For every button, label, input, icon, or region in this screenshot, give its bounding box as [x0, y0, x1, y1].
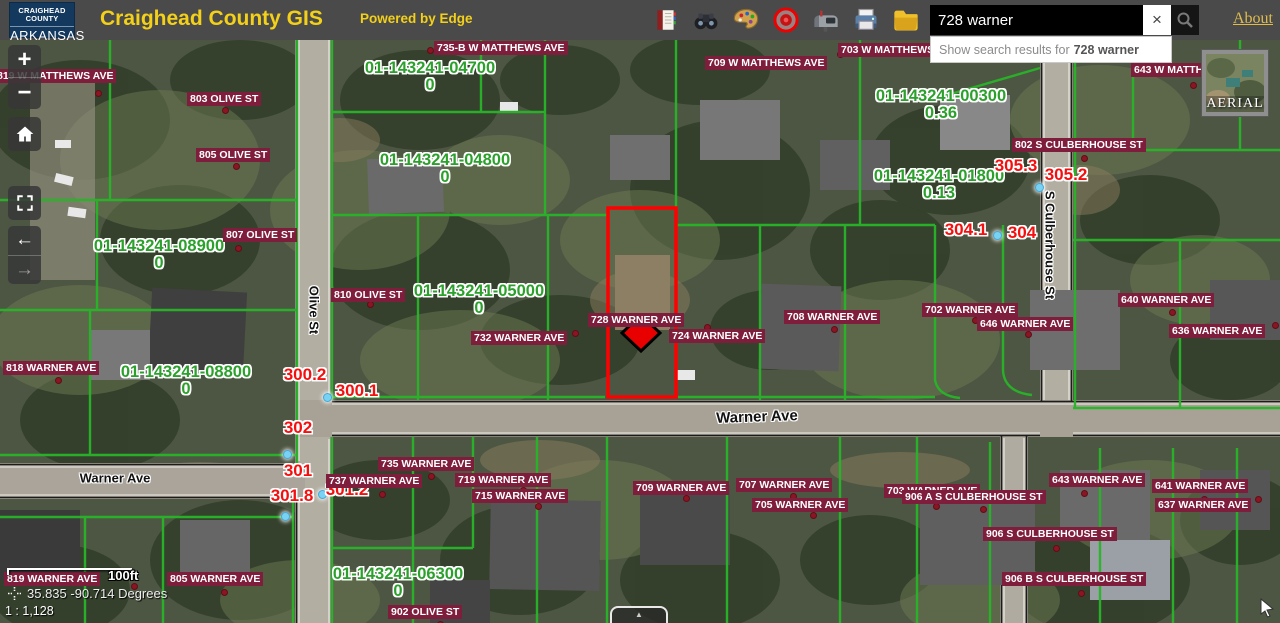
palette-icon[interactable] — [730, 4, 761, 35]
survey-point-label: 300.1 — [336, 381, 379, 401]
parcel-id: 01-143241-04700 — [365, 60, 495, 77]
mailbox-icon[interactable] — [810, 4, 841, 35]
address-point-dot — [428, 473, 435, 480]
address-label: 902 OLIVE ST — [388, 605, 462, 619]
survey-point-label: 305.2 — [1045, 165, 1088, 185]
address-label: 810 OLIVE ST — [331, 288, 405, 302]
address-point-dot — [1025, 331, 1032, 338]
app-header: CRAIGHEAD COUNTY ARKANSAS Craighead Coun… — [0, 0, 1280, 40]
address-point-dot — [535, 503, 542, 510]
address-point-dot — [1053, 545, 1060, 552]
address-label: 636 WARNER AVE — [1169, 324, 1265, 338]
clear-search-button[interactable]: × — [1143, 5, 1171, 35]
parcel-id: 01-143241-04800 — [380, 152, 510, 169]
county-logo: CRAIGHEAD COUNTY ARKANSAS — [9, 2, 75, 38]
search-button[interactable] — [1171, 5, 1199, 35]
point-marker[interactable] — [281, 512, 290, 521]
history-control: ← → — [8, 226, 41, 284]
search-input[interactable] — [930, 5, 1143, 35]
parcel-area: 0 — [333, 583, 463, 600]
parcel-id: 01-143241-01800 — [874, 168, 1004, 185]
parcel-area: 0 — [380, 169, 510, 186]
address-point-dot — [1272, 322, 1279, 329]
search-suggestion[interactable]: Show search results for 728 warner — [930, 36, 1172, 63]
toolbar — [650, 4, 921, 35]
parcel-area: 0.13 — [874, 185, 1004, 202]
parcel-id: 01-143241-08800 — [121, 364, 251, 381]
address-label: 805 WARNER AVE — [167, 572, 263, 586]
search-area: × — [930, 5, 1199, 35]
parcel-area: 0 — [121, 381, 251, 398]
address-label: 728 WARNER AVE — [588, 313, 684, 327]
address-point-dot — [222, 107, 229, 114]
address-point-dot — [367, 301, 374, 308]
forward-button[interactable]: → — [8, 255, 41, 284]
about-link[interactable]: About — [1233, 10, 1273, 28]
point-marker[interactable] — [323, 393, 332, 402]
address-label: 906 B S CULBERHOUSE ST — [1002, 572, 1146, 586]
basemap-label: AERIAL — [1206, 96, 1264, 112]
address-label: 906 A S CULBERHOUSE ST — [902, 490, 1046, 504]
suggestion-term: 728 warner — [1074, 43, 1139, 57]
fullscreen-icon — [16, 194, 34, 212]
suggestion-prefix: Show search results for — [939, 43, 1070, 57]
parcel-area: 0 — [365, 77, 495, 94]
parcel-area: 0.36 — [876, 105, 1006, 122]
binoculars-icon[interactable] — [690, 4, 721, 35]
address-point-dot — [831, 326, 838, 333]
point-marker[interactable] — [993, 231, 1002, 240]
survey-point-label: 300.2 — [284, 365, 327, 385]
chevron-up-icon: ▲ — [635, 610, 643, 619]
zoom-control: + − — [8, 45, 41, 109]
address-point-dot — [1078, 590, 1085, 597]
parcel-id-label[interactable]: 01-143241-063000 — [333, 566, 463, 600]
logo-line2: ARKANSAS — [10, 26, 74, 42]
logo-line1: CRAIGHEAD COUNTY — [10, 7, 74, 22]
point-marker[interactable] — [1035, 183, 1044, 192]
parcel-area: 0 — [94, 255, 224, 272]
parcel-id: 01-143241-06300 — [333, 566, 463, 583]
target-icon[interactable] — [770, 4, 801, 35]
address-point-dot — [379, 491, 386, 498]
address-label: 818 WARNER AVE — [3, 361, 99, 375]
address-label: 735-B W MATTHEWS AVE — [434, 41, 568, 55]
address-label: 708 WARNER AVE — [784, 310, 880, 324]
address-point-dot — [1081, 155, 1088, 162]
address-label: 803 OLIVE ST — [187, 92, 261, 106]
address-point-dot — [1169, 309, 1176, 316]
address-label: 709 WARNER AVE — [633, 481, 729, 495]
address-label: 805 OLIVE ST — [196, 148, 270, 162]
survey-point-label: 304.1 — [945, 220, 988, 240]
address-point-dot — [683, 495, 690, 502]
parcel-id-label[interactable]: 01-143241-050000 — [414, 283, 544, 317]
survey-point-label: 301 — [284, 461, 312, 481]
address-point-dot — [221, 589, 228, 596]
survey-point-label: 301.8 — [271, 486, 314, 506]
address-label: 709 W MATTHEWS AVE — [705, 56, 827, 70]
address-label: 641 WARNER AVE — [1152, 479, 1248, 493]
address-label: 705 WARNER AVE — [752, 498, 848, 512]
address-label: 715 WARNER AVE — [472, 489, 568, 503]
basemap-toggle[interactable]: AERIAL — [1202, 50, 1268, 116]
parcel-id: 01-143241-00300 — [876, 88, 1006, 105]
address-point-dot — [980, 506, 987, 513]
folder-icon[interactable] — [890, 4, 921, 35]
street-name-label: Warner Ave — [716, 407, 798, 427]
address-point-dot — [572, 330, 579, 337]
crosshair-icon — [8, 587, 21, 605]
address-label: 637 WARNER AVE — [1155, 498, 1251, 512]
address-point-dot — [1081, 490, 1088, 497]
address-label: 807 OLIVE ST — [223, 228, 297, 242]
address-label: 640 WARNER AVE — [1118, 293, 1214, 307]
address-label: 737 WARNER AVE — [326, 474, 422, 488]
expand-panel-tab[interactable]: ▲ — [610, 606, 668, 623]
book-icon[interactable] — [650, 4, 681, 35]
address-point-dot — [235, 245, 242, 252]
street-name-label: Warner Ave — [80, 471, 151, 486]
survey-point-label: 305.3 — [995, 156, 1038, 176]
parcel-id-label[interactable]: 01-143241-047000 — [365, 60, 495, 94]
address-label: 702 WARNER AVE — [922, 303, 1018, 317]
parcel-id-label[interactable]: 01-143241-003000.36 — [876, 88, 1006, 122]
survey-point-label: 304 — [1008, 223, 1036, 243]
powered-by-label: Powered by Edge — [360, 11, 473, 26]
search-icon — [1176, 11, 1194, 29]
address-point-dot — [95, 90, 102, 97]
mouse-cursor-icon — [1258, 598, 1276, 623]
address-label: 732 WARNER AVE — [471, 331, 567, 345]
zoom-in-button[interactable]: + — [8, 45, 41, 77]
point-marker[interactable] — [283, 450, 292, 459]
cursor-coordinates: 35.835 -90.714 Degrees — [27, 586, 167, 601]
address-point-dot — [933, 503, 940, 510]
address-point-dot — [1190, 82, 1197, 89]
fullscreen-button[interactable] — [8, 186, 41, 220]
page-title: Craighead County GIS — [100, 7, 323, 31]
parcel-id-label[interactable]: 01-143241-048000 — [380, 152, 510, 186]
address-point-dot — [427, 47, 434, 54]
address-label: 646 WARNER AVE — [977, 317, 1073, 331]
parcel-id: 01-143241-05000 — [414, 283, 544, 300]
back-button[interactable]: ← — [8, 226, 41, 255]
home-button[interactable] — [8, 117, 41, 151]
address-label: 735 WARNER AVE — [378, 457, 474, 471]
address-point-dot — [810, 512, 817, 519]
parcel-area: 0 — [414, 300, 544, 317]
home-icon — [15, 124, 35, 144]
street-name-label: Olive St — [307, 286, 322, 334]
address-label: 643 WARNER AVE — [1049, 473, 1145, 487]
address-point-dot — [233, 163, 240, 170]
address-point-dot — [55, 377, 62, 384]
parcel-id-label[interactable]: 01-143241-089000 — [94, 238, 224, 272]
scale-ratio: 1 : 1,128 — [5, 604, 54, 618]
scale-label: 100ft — [108, 568, 138, 583]
printer-icon[interactable] — [850, 4, 881, 35]
address-label: 707 WARNER AVE — [736, 478, 832, 492]
parcel-id: 01-143241-08900 — [94, 238, 224, 255]
address-label: 724 WARNER AVE — [669, 329, 765, 343]
street-name-label: S Culberhouse St — [1043, 191, 1058, 299]
parcel-id-label[interactable]: 01-143241-018000.13 — [874, 168, 1004, 202]
map-canvas[interactable]: 735-B W MATTHEWS AVE703 W MATTHEWS AVE70… — [0, 40, 1280, 623]
parcel-id-label[interactable]: 01-143241-088000 — [121, 364, 251, 398]
zoom-out-button[interactable]: − — [8, 77, 41, 109]
address-label: 719 WARNER AVE — [455, 473, 551, 487]
address-label: 906 S CULBERHOUSE ST — [983, 527, 1117, 541]
address-point-dot — [1255, 496, 1262, 503]
survey-point-label: 302 — [284, 418, 312, 438]
address-label: 802 S CULBERHOUSE ST — [1012, 138, 1146, 152]
